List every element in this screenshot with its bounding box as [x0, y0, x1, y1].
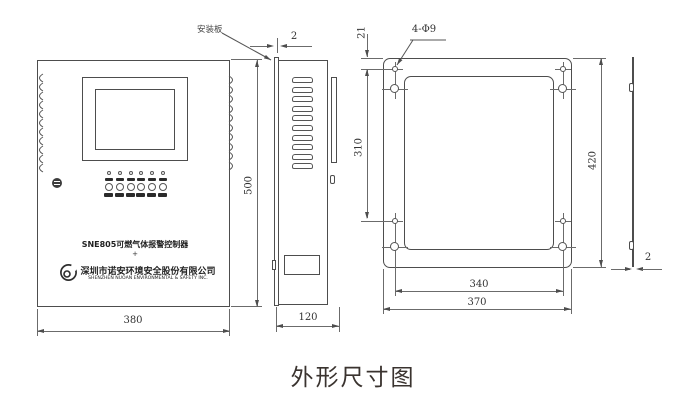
- model-title: SNE805可燃气体报警控制器: [45, 239, 225, 250]
- dim-rear-width: 370: [447, 297, 507, 308]
- led-indicator: [161, 171, 165, 175]
- ext-line: [361, 58, 383, 59]
- arrowhead: [255, 60, 259, 67]
- dim-profile-thickness: 2: [642, 252, 654, 263]
- mounting-hole-large: [390, 84, 399, 93]
- dim-line: [276, 326, 339, 327]
- side-vent-louver: [292, 77, 313, 83]
- side-vent-louver: [292, 144, 313, 150]
- arrowhead: [280, 44, 287, 48]
- rear-inner-panel: [404, 76, 554, 250]
- side-vent-louver: [292, 125, 313, 131]
- display-screen: [95, 89, 175, 150]
- arrowhead: [556, 289, 563, 293]
- dim-line: [601, 58, 602, 267]
- arrowhead: [365, 50, 369, 57]
- arrowhead: [37, 329, 44, 333]
- profile-slot: [629, 83, 634, 92]
- ext-line: [361, 221, 388, 222]
- arrowhead: [365, 212, 369, 219]
- mounting-hole-small: [392, 218, 398, 224]
- side-label-plate: [284, 255, 320, 275]
- arrowhead: [267, 44, 274, 48]
- drawing-caption: 外形尺寸图: [240, 358, 466, 392]
- side-latch: [330, 175, 335, 184]
- led-indicator: [150, 171, 154, 175]
- side-hinge-bump: [272, 260, 276, 270]
- company-name-en: SHENZHEN NUOAN ENVIRONMENTAL & SAFETY IN…: [78, 276, 218, 281]
- dim-line: [257, 60, 258, 307]
- holes-label: 4-Φ9: [404, 24, 444, 35]
- panel-button: [105, 183, 113, 191]
- arrowhead: [395, 289, 402, 293]
- dim-side-depth: 120: [278, 312, 338, 323]
- mounting-hole-large: [390, 242, 399, 251]
- led-label: [137, 178, 145, 181]
- mounting-hole-large: [558, 242, 567, 251]
- dim-hole-spacing-h: 340: [449, 279, 509, 290]
- dim-line: [367, 70, 368, 218]
- dim-line: [37, 331, 230, 332]
- dim-plate-thickness-top: 2: [288, 31, 300, 42]
- arrowhead: [383, 307, 390, 311]
- mounting-hole-small: [560, 66, 566, 72]
- separator-mark: +: [130, 250, 140, 258]
- led-indicator: [129, 171, 133, 175]
- button-label: [147, 193, 156, 197]
- side-vent-louver: [292, 135, 313, 141]
- arrowhead: [365, 69, 369, 76]
- dim-line: [383, 309, 571, 310]
- led-label: [127, 178, 135, 181]
- button-label: [126, 193, 135, 197]
- profile-slot: [629, 241, 634, 250]
- led-label: [116, 178, 124, 181]
- led-label: [105, 178, 113, 181]
- dim-hole-spacing-v: 310: [354, 133, 365, 163]
- button-label: [115, 193, 124, 197]
- ext-line: [277, 38, 278, 53]
- ext-line: [573, 267, 606, 268]
- mounting-hole-large: [558, 84, 567, 93]
- dim-front-height: 500: [244, 171, 255, 201]
- side-door-strip: [331, 77, 337, 163]
- button-label: [158, 193, 167, 197]
- button-label: [136, 193, 145, 197]
- side-vent-louver: [292, 106, 313, 112]
- panel-button: [159, 183, 167, 191]
- dim-line: [395, 291, 563, 292]
- key-lock-icon: [52, 178, 62, 188]
- side-vent-louver: [292, 163, 313, 169]
- mounting-plate-label: 安装板: [197, 23, 223, 35]
- panel-button: [116, 183, 124, 191]
- panel-button: [127, 183, 135, 191]
- arrowhead: [625, 267, 632, 271]
- arrowhead: [599, 260, 603, 267]
- dim-line: [250, 46, 268, 47]
- mounting-hole-small: [560, 218, 566, 224]
- side-vent-louver: [292, 87, 313, 93]
- crosshair-line: [395, 213, 396, 296]
- panel-button: [148, 183, 156, 191]
- arrowhead: [599, 58, 603, 65]
- led-label: [148, 178, 156, 181]
- mounting-hole-small: [392, 66, 398, 72]
- ext-line: [339, 307, 340, 332]
- dim-line: [287, 46, 312, 47]
- button-label: [104, 193, 113, 197]
- ext-line: [571, 269, 572, 314]
- dim-line: [642, 269, 662, 270]
- led-indicator: [118, 171, 122, 175]
- crosshair-line: [563, 213, 564, 296]
- panel-button: [137, 183, 145, 191]
- side-vent-louver: [292, 154, 313, 160]
- arrowhead: [255, 300, 259, 307]
- dimension-drawing: SNE805可燃气体报警控制器 + 深圳市诺安环境安全股份有限公司 SHENZH…: [0, 0, 700, 412]
- side-vent-louver: [292, 96, 313, 102]
- ext-line: [276, 307, 277, 332]
- arrowhead: [564, 307, 571, 311]
- arrowhead: [276, 324, 283, 328]
- led-indicator: [107, 171, 111, 175]
- dim-front-width: 380: [103, 315, 163, 326]
- arrowhead: [223, 329, 230, 333]
- side-vent-louver: [292, 115, 313, 121]
- dim-rear-height: 420: [588, 146, 599, 176]
- arrowhead: [332, 324, 339, 328]
- dim-hole-offset-top: 21: [357, 21, 368, 45]
- led-label: [159, 178, 167, 181]
- led-indicator: [139, 171, 143, 175]
